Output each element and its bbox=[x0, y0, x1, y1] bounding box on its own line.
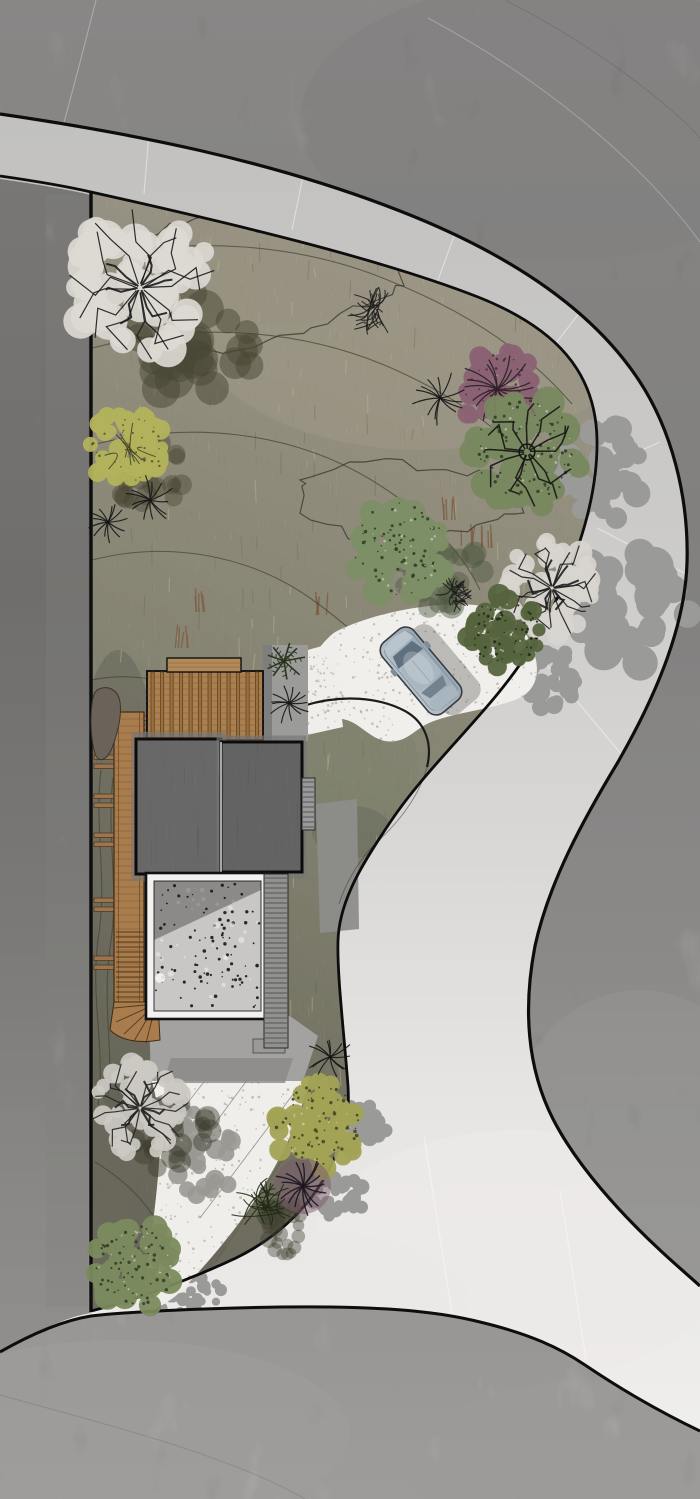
east-stairs bbox=[264, 874, 288, 1048]
courtyard-patio bbox=[146, 873, 269, 1019]
house-shadow bbox=[316, 799, 359, 933]
site-plan-rendering bbox=[0, 0, 700, 1499]
roof-panel-east bbox=[221, 742, 302, 872]
deck-step bbox=[167, 658, 241, 672]
terrain-left-strip bbox=[0, 170, 95, 1360]
roof-panel-west bbox=[136, 739, 221, 874]
south-concrete-pad bbox=[149, 1016, 318, 1083]
wood-deck bbox=[147, 671, 263, 740]
site-plan-canvas bbox=[0, 0, 700, 1499]
house-roof bbox=[136, 739, 302, 874]
northeast-stairs bbox=[302, 778, 315, 830]
left-strip-texture bbox=[0, 170, 95, 1360]
yellow-green-tree bbox=[83, 407, 170, 486]
